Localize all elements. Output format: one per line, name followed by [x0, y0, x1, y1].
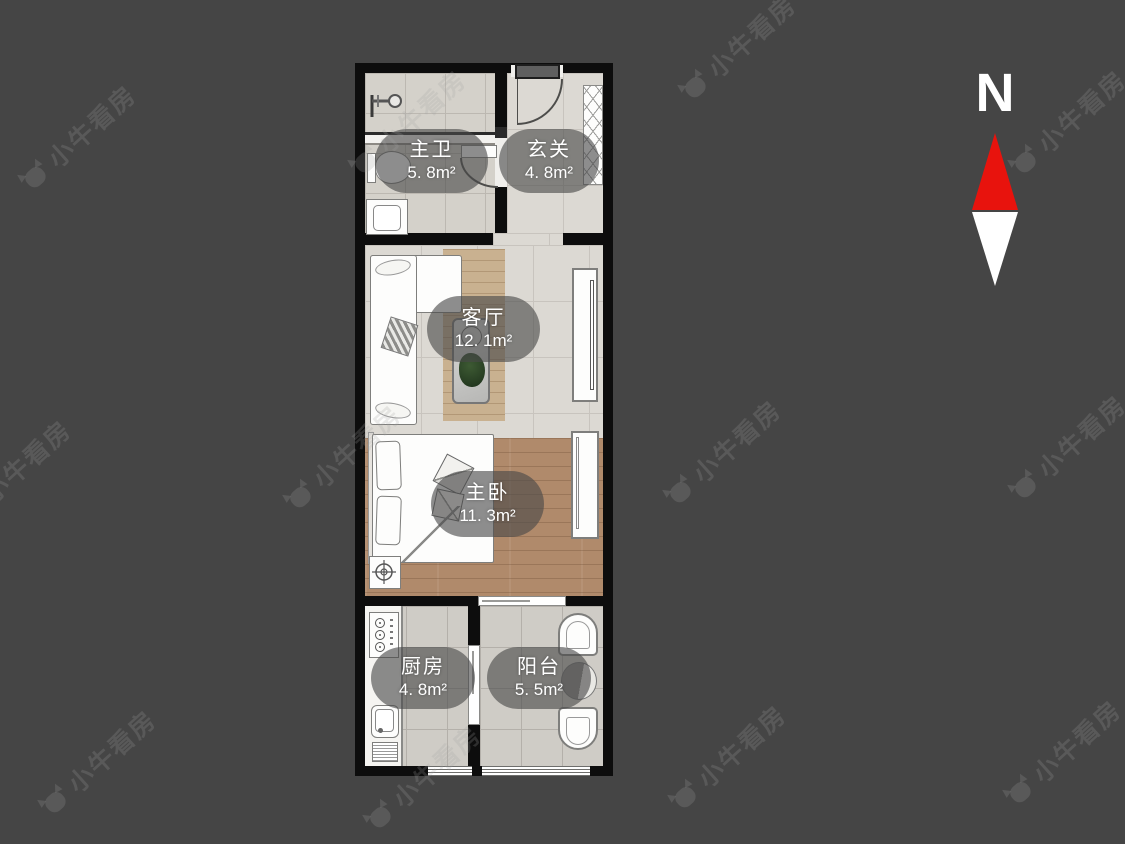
- entry-living-passage: [493, 233, 563, 245]
- washer-bottom-inner: [566, 717, 590, 745]
- cow-logo-icon: [1000, 772, 1040, 811]
- bed-pillow-1: [375, 441, 402, 491]
- room-area: 4. 8m²: [525, 162, 573, 184]
- room-name: 阳台: [517, 655, 561, 679]
- room-name: 主卫: [410, 138, 454, 162]
- shower-icon: [368, 89, 408, 123]
- room-name: 客厅: [462, 306, 506, 330]
- bed-pillow-2: [375, 496, 402, 546]
- label-kitchen: 厨房 4. 8m²: [371, 647, 475, 709]
- wardrobe-rail: [576, 437, 579, 529]
- kitchen-sink: [371, 705, 399, 738]
- washer-bottom: [558, 707, 598, 750]
- room-area: 5. 8m²: [407, 162, 455, 184]
- watermark: 小牛看房: [12, 76, 144, 200]
- watermark: 小牛看房: [657, 391, 789, 515]
- faucet-dot: [378, 728, 383, 733]
- watermark: 小牛看房: [997, 691, 1125, 815]
- bathroom-sink: [366, 199, 408, 235]
- room-name: 玄关: [527, 138, 571, 162]
- watermark: 小牛看房: [662, 696, 794, 820]
- label-master-bedroom: 主卧 11. 3m²: [431, 471, 544, 537]
- compass-arrow-icon: [971, 128, 1019, 288]
- label-entry: 玄关 4. 8m²: [499, 129, 599, 193]
- room-name: 厨房: [401, 655, 445, 679]
- compass-n-label: N: [963, 66, 1027, 120]
- bedroom-balcony-sliding-door: [478, 596, 566, 606]
- balcony-window: [482, 766, 590, 776]
- floorplan: 主卫 5. 8m² 玄关 4. 8m² 客厅 12. 1m² 主卧 11. 3m…: [355, 63, 613, 776]
- entry-door-leaf: [515, 64, 560, 79]
- cow-logo-icon: [15, 157, 55, 196]
- stove-burner-1: [375, 618, 385, 628]
- stove-burner-2: [375, 630, 385, 640]
- cow-logo-icon: [360, 797, 400, 836]
- room-name: 主卧: [466, 481, 510, 505]
- tv-stand: [572, 268, 598, 402]
- tv: [590, 280, 594, 390]
- stove-burner-3: [375, 642, 385, 652]
- watermark: 小牛看房: [672, 0, 804, 110]
- cow-logo-icon: [675, 67, 715, 106]
- cow-logo-icon: [665, 777, 705, 816]
- dish-rack: [372, 742, 398, 762]
- room-area: 12. 1m²: [455, 330, 513, 352]
- cow-logo-icon: [1005, 467, 1045, 506]
- label-living-room: 客厅 12. 1m²: [427, 296, 540, 362]
- cow-logo-icon: [35, 782, 75, 821]
- room-area: 4. 8m²: [399, 679, 447, 701]
- crosshair-icon: [370, 557, 399, 587]
- stove-knobs: [390, 619, 393, 649]
- north-compass: N: [963, 66, 1027, 296]
- entry-door-arc: [517, 79, 563, 125]
- label-balcony: 阳台 5. 5m²: [487, 647, 591, 709]
- wardrobe: [571, 431, 599, 539]
- watermark: 小牛看房: [32, 701, 164, 825]
- cow-logo-icon: [280, 477, 320, 516]
- cow-logo-icon: [660, 472, 700, 511]
- room-area: 5. 5m²: [515, 679, 563, 701]
- watermark: 小牛看房: [0, 411, 78, 535]
- washer-top-inner: [566, 621, 590, 649]
- bathroom-door-jamb: [495, 127, 507, 138]
- screenshot-root: { "watermark": { "text": "小牛看房" }, "comp…: [0, 0, 1125, 844]
- kitchen-window: [428, 766, 472, 776]
- room-area: 11. 3m²: [459, 505, 515, 527]
- bedside-unit: [369, 556, 401, 589]
- bathroom-sink-basin: [373, 205, 401, 231]
- watermark: 小牛看房: [1002, 386, 1125, 510]
- label-master-bath: 主卫 5. 8m²: [375, 129, 488, 193]
